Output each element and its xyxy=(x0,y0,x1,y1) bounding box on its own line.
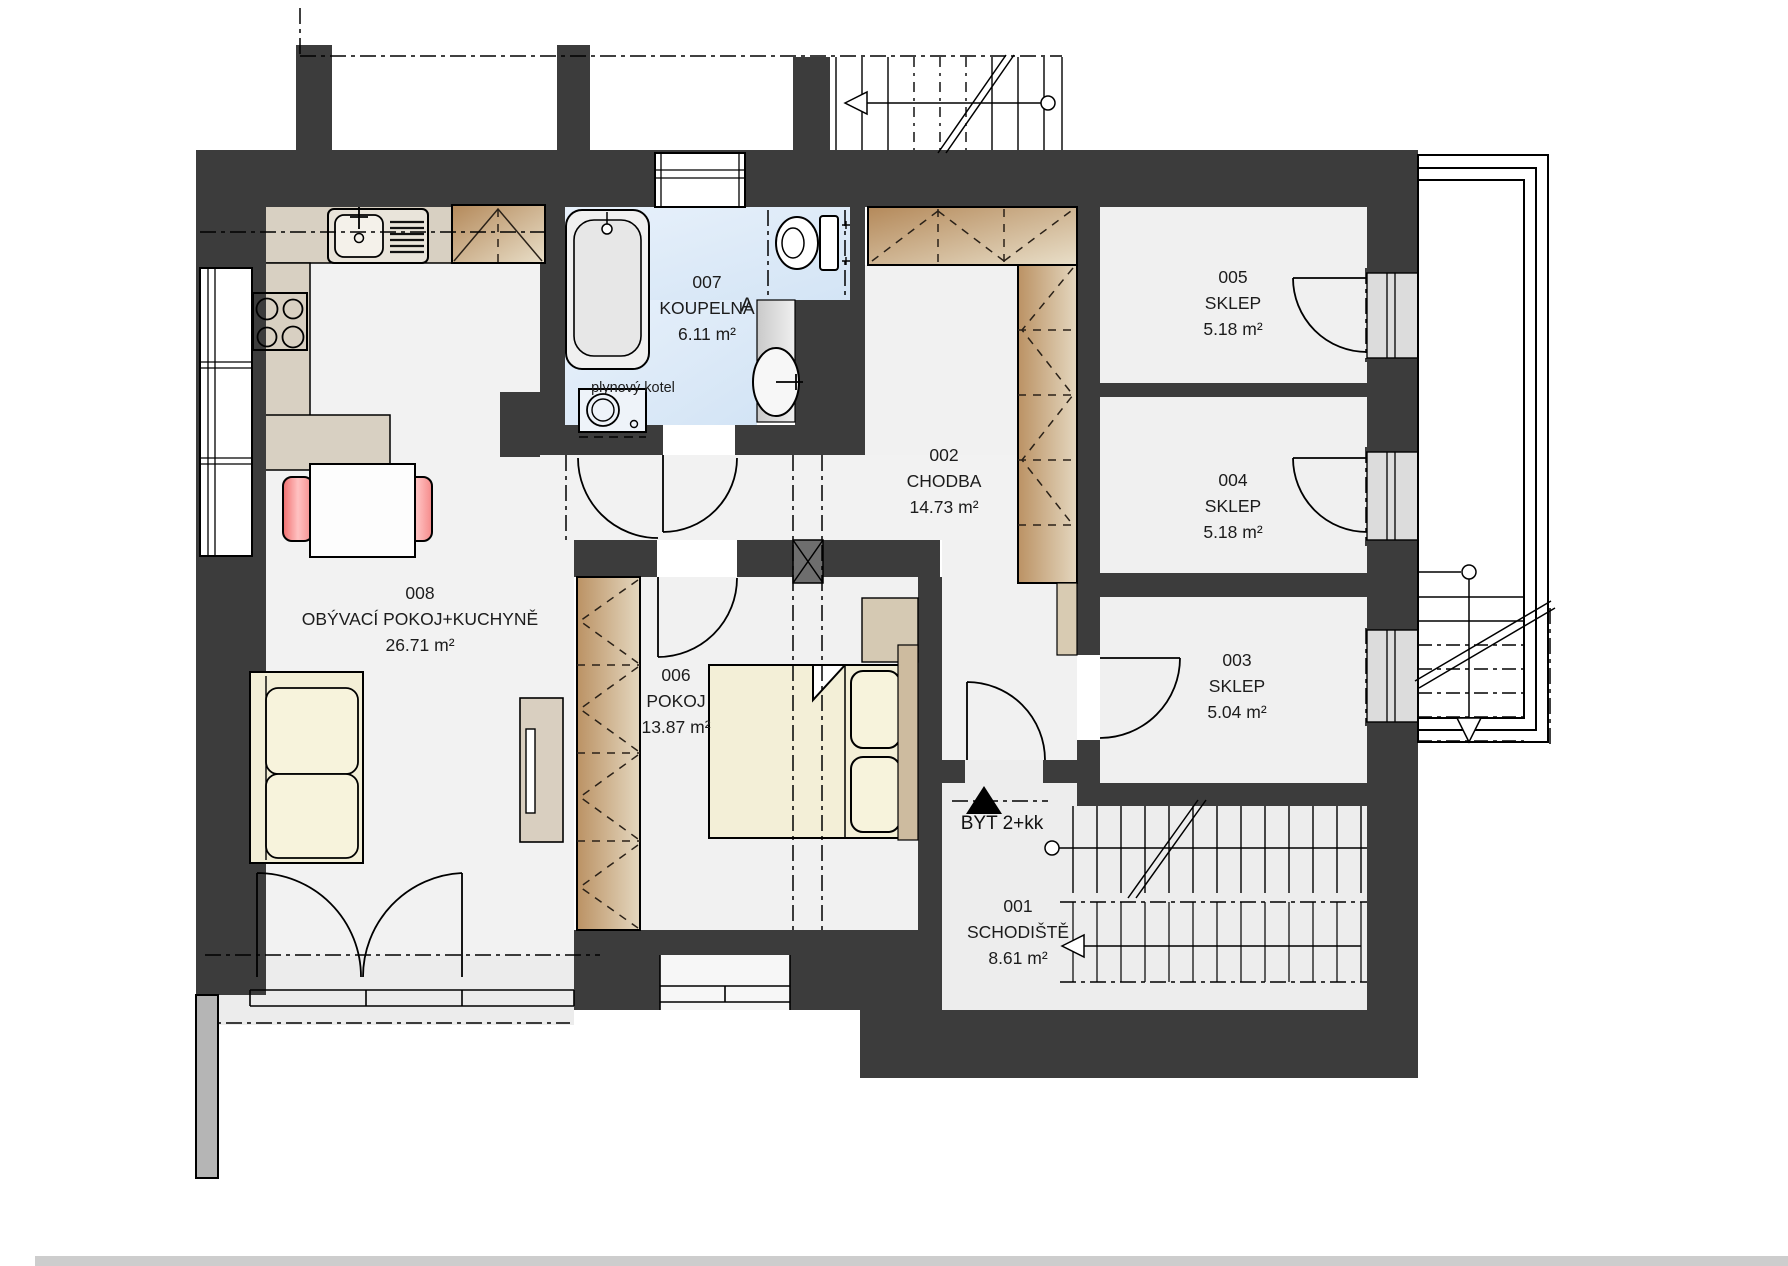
apartment-unit-label: BYT 2+kk xyxy=(961,813,1044,835)
sofa xyxy=(250,672,363,863)
room-label-003: 003 SKLEP 5.04 m² xyxy=(1207,647,1266,725)
wall-stub-1 xyxy=(296,45,332,150)
terrace-right xyxy=(1418,155,1548,742)
stair-walkline-start xyxy=(1045,841,1059,855)
wall-cellar3-bottom xyxy=(1077,783,1367,806)
bedroom-wardrobe xyxy=(577,577,640,930)
room-area: 14.73 m² xyxy=(907,494,982,520)
top-window xyxy=(655,153,745,207)
wall-stub-3 xyxy=(793,57,830,150)
wall-bath-bottom-r xyxy=(735,425,865,455)
floor-plan-drawing xyxy=(0,0,1788,1266)
wall-bed-bottom-l xyxy=(574,930,660,1010)
room-label-001: 001 SCHODIŠTĚ 8.61 m² xyxy=(967,893,1069,971)
dining-table xyxy=(310,464,415,557)
wall-bottom xyxy=(860,1010,1418,1078)
room-number: 005 xyxy=(1203,264,1262,290)
room-number: 004 xyxy=(1203,467,1262,493)
left-window xyxy=(200,268,252,556)
section-marker-a: A xyxy=(740,295,753,318)
stairs-top xyxy=(836,55,1062,153)
room-label-005: 005 SKLEP 5.18 m² xyxy=(1203,264,1262,342)
boiler-label: plynový kotel xyxy=(591,380,675,396)
room-number: 006 xyxy=(641,662,710,688)
wall-bed-bottom-r xyxy=(790,930,918,1010)
counter-foot xyxy=(250,415,390,470)
room-area: 13.87 m² xyxy=(641,714,710,740)
wall-block xyxy=(500,392,540,457)
room-number: 003 xyxy=(1207,647,1266,673)
wall-cellar-54 xyxy=(1100,383,1367,397)
room-area: 5.18 m² xyxy=(1203,519,1262,545)
wall-bath-right xyxy=(850,207,865,300)
wall-right-3 xyxy=(1367,540,1418,630)
gas-boiler xyxy=(579,389,646,437)
right-wall-door-panels xyxy=(1367,273,1418,722)
column-marker xyxy=(793,540,823,583)
washbasin xyxy=(753,300,803,422)
double-bed xyxy=(709,665,906,838)
page-edge-strip xyxy=(35,1256,1788,1266)
room-name: SKLEP xyxy=(1207,673,1266,699)
floor-plan: 008 OBÝVACÍ POKOJ+KUCHYNĚ 26.71 m² 007 K… xyxy=(0,0,1788,1266)
wall-bed-bottom-m xyxy=(660,930,790,955)
wall-bedroom-top-r xyxy=(737,540,940,577)
hallway-floor-upper xyxy=(865,265,1018,455)
stairs-right-exterior xyxy=(1415,565,1555,742)
wall-top xyxy=(196,150,1418,207)
stairs-top-arrow xyxy=(845,92,867,114)
room-name: POKOJ xyxy=(641,688,710,714)
room-name: CHODBA xyxy=(907,468,982,494)
room-area: 26.71 m² xyxy=(302,632,538,658)
room-number: 002 xyxy=(907,442,982,468)
wall-right-2 xyxy=(1367,358,1418,452)
room-label-008: 008 OBÝVACÍ POKOJ+KUCHYNĚ 26.71 m² xyxy=(302,580,538,658)
wall-cellar-43 xyxy=(1100,573,1367,597)
entry-door-opening xyxy=(965,760,1043,783)
kitchen-tall-cabinet xyxy=(452,205,545,263)
room-name: OBÝVACÍ POKOJ+KUCHYNĚ xyxy=(302,606,538,632)
room-name: SKLEP xyxy=(1203,493,1262,519)
tv-board xyxy=(520,698,563,842)
room-number: 008 xyxy=(302,580,538,606)
wall-bedroom-top-l xyxy=(574,540,657,577)
room-number: 001 xyxy=(967,893,1069,919)
room-number: 007 xyxy=(659,269,754,295)
room-area: 5.18 m² xyxy=(1203,316,1262,342)
stairs-top-break xyxy=(938,55,1014,153)
room-name: SKLEP xyxy=(1203,290,1262,316)
room-area: 6.11 m² xyxy=(659,321,754,347)
wall-stub-2 xyxy=(557,45,590,150)
wall-hall-cellar-a xyxy=(1077,207,1100,655)
kitchen-sink xyxy=(328,207,428,263)
dining-chair-left xyxy=(283,477,313,541)
room-area: 8.61 m² xyxy=(967,945,1069,971)
wall-bedroom-right xyxy=(918,577,942,1010)
room-label-006: 006 POKOJ 13.87 m² xyxy=(641,662,710,740)
room-label-004: 004 SKLEP 5.18 m² xyxy=(1203,467,1262,545)
wall-right-1 xyxy=(1367,150,1418,273)
bedside-shelf xyxy=(898,645,918,840)
bathtub xyxy=(566,210,649,369)
room-area: 5.04 m² xyxy=(1207,699,1266,725)
room-label-002: 002 CHODBA 14.73 m² xyxy=(907,442,982,520)
room-name: SCHODIŠTĚ xyxy=(967,919,1069,945)
exterior-wall-stub xyxy=(196,995,218,1178)
wall-entry-l xyxy=(942,760,965,783)
